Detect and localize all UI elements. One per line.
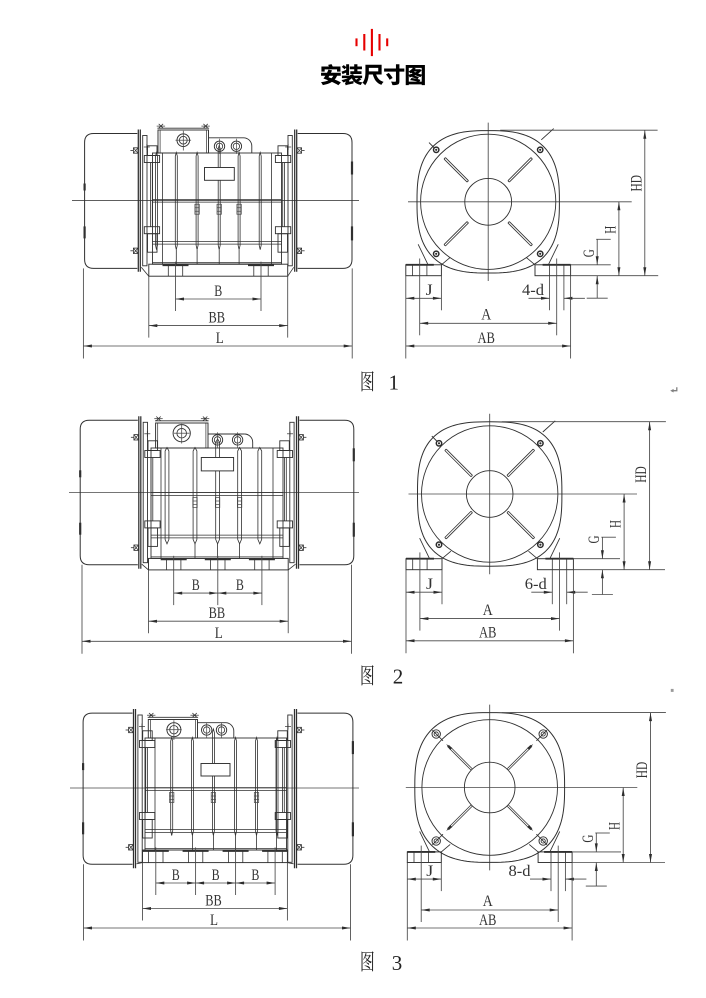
- svg-text:HD: HD: [633, 466, 650, 483]
- svg-text:B: B: [214, 283, 222, 300]
- svg-text:4-d: 4-d: [522, 282, 544, 299]
- svg-text:8-d: 8-d: [509, 863, 531, 880]
- svg-text:H: H: [608, 520, 625, 528]
- svg-text:HD: HD: [634, 762, 651, 779]
- svg-text:A: A: [483, 602, 493, 619]
- svg-text:B: B: [251, 867, 259, 884]
- svg-text:G: G: [581, 249, 598, 257]
- svg-text:BB: BB: [205, 892, 222, 909]
- svg-text:BB: BB: [209, 605, 226, 622]
- svg-text:G: G: [580, 834, 597, 842]
- svg-text:AB: AB: [479, 625, 497, 642]
- svg-text:AB: AB: [477, 330, 495, 347]
- svg-text:H: H: [607, 822, 624, 830]
- svg-text:HD: HD: [628, 175, 645, 192]
- svg-text:6-d: 6-d: [525, 576, 547, 593]
- svg-text:L: L: [216, 330, 224, 347]
- svg-text:2: 2: [393, 665, 404, 689]
- svg-text:AB: AB: [479, 912, 497, 929]
- svg-text:L: L: [210, 912, 218, 929]
- svg-text:B: B: [192, 577, 200, 594]
- svg-text:3: 3: [392, 951, 403, 975]
- svg-text:1: 1: [388, 371, 399, 395]
- svg-text:J: J: [426, 576, 433, 593]
- svg-text:H: H: [602, 225, 619, 233]
- svg-text:A: A: [483, 893, 493, 910]
- svg-text:G: G: [586, 535, 603, 543]
- svg-text:A: A: [481, 307, 491, 324]
- svg-text:J: J: [426, 282, 433, 299]
- svg-text:L: L: [215, 625, 223, 642]
- svg-text:J: J: [426, 863, 433, 880]
- svg-text:B: B: [172, 867, 180, 884]
- svg-text:B: B: [212, 867, 220, 884]
- svg-text:BB: BB: [209, 309, 226, 326]
- svg-text:B: B: [236, 577, 244, 594]
